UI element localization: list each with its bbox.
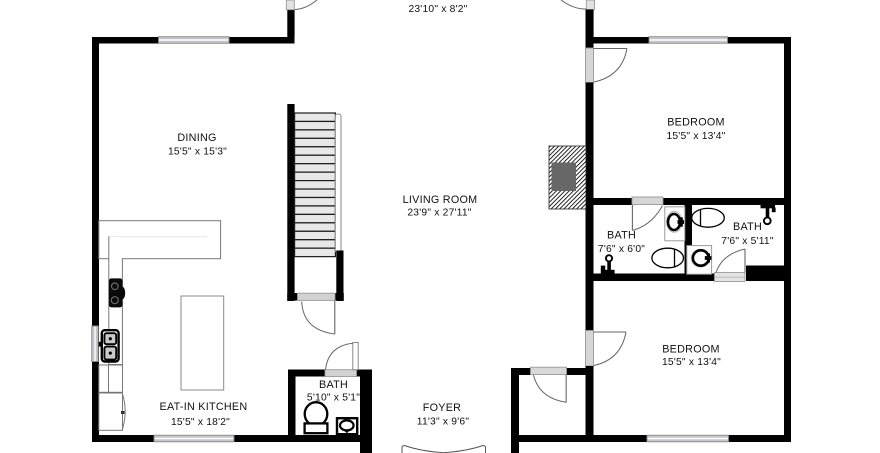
svg-text:BATH: BATH xyxy=(607,230,636,242)
svg-text:FOYER: FOYER xyxy=(423,402,461,414)
svg-text:15'5" x 13'4": 15'5" x 13'4" xyxy=(666,131,725,142)
svg-text:23'9" x 27'11": 23'9" x 27'11" xyxy=(407,208,471,219)
svg-text:15'5" x 13'4": 15'5" x 13'4" xyxy=(662,357,721,368)
svg-text:15'5" x 18'2": 15'5" x 18'2" xyxy=(171,417,230,428)
svg-text:DINING: DINING xyxy=(177,132,216,144)
svg-text:15'5" x 15'3": 15'5" x 15'3" xyxy=(168,147,227,158)
svg-text:BATH: BATH xyxy=(733,221,762,233)
svg-text:7'6" x 6'0": 7'6" x 6'0" xyxy=(598,244,645,255)
svg-text:11'3" x 9'6": 11'3" x 9'6" xyxy=(417,417,470,428)
svg-text:BEDROOM: BEDROOM xyxy=(667,117,725,129)
svg-text:23'10" x 8'2": 23'10" x 8'2" xyxy=(408,4,467,15)
svg-text:BEDROOM: BEDROOM xyxy=(662,344,720,356)
svg-text:7'6" x 5'11": 7'6" x 5'11" xyxy=(721,236,774,247)
svg-text:LIVING ROOM: LIVING ROOM xyxy=(403,194,478,206)
svg-text:BATH: BATH xyxy=(319,379,348,391)
svg-text:EAT-IN KITCHEN: EAT-IN KITCHEN xyxy=(160,401,248,413)
